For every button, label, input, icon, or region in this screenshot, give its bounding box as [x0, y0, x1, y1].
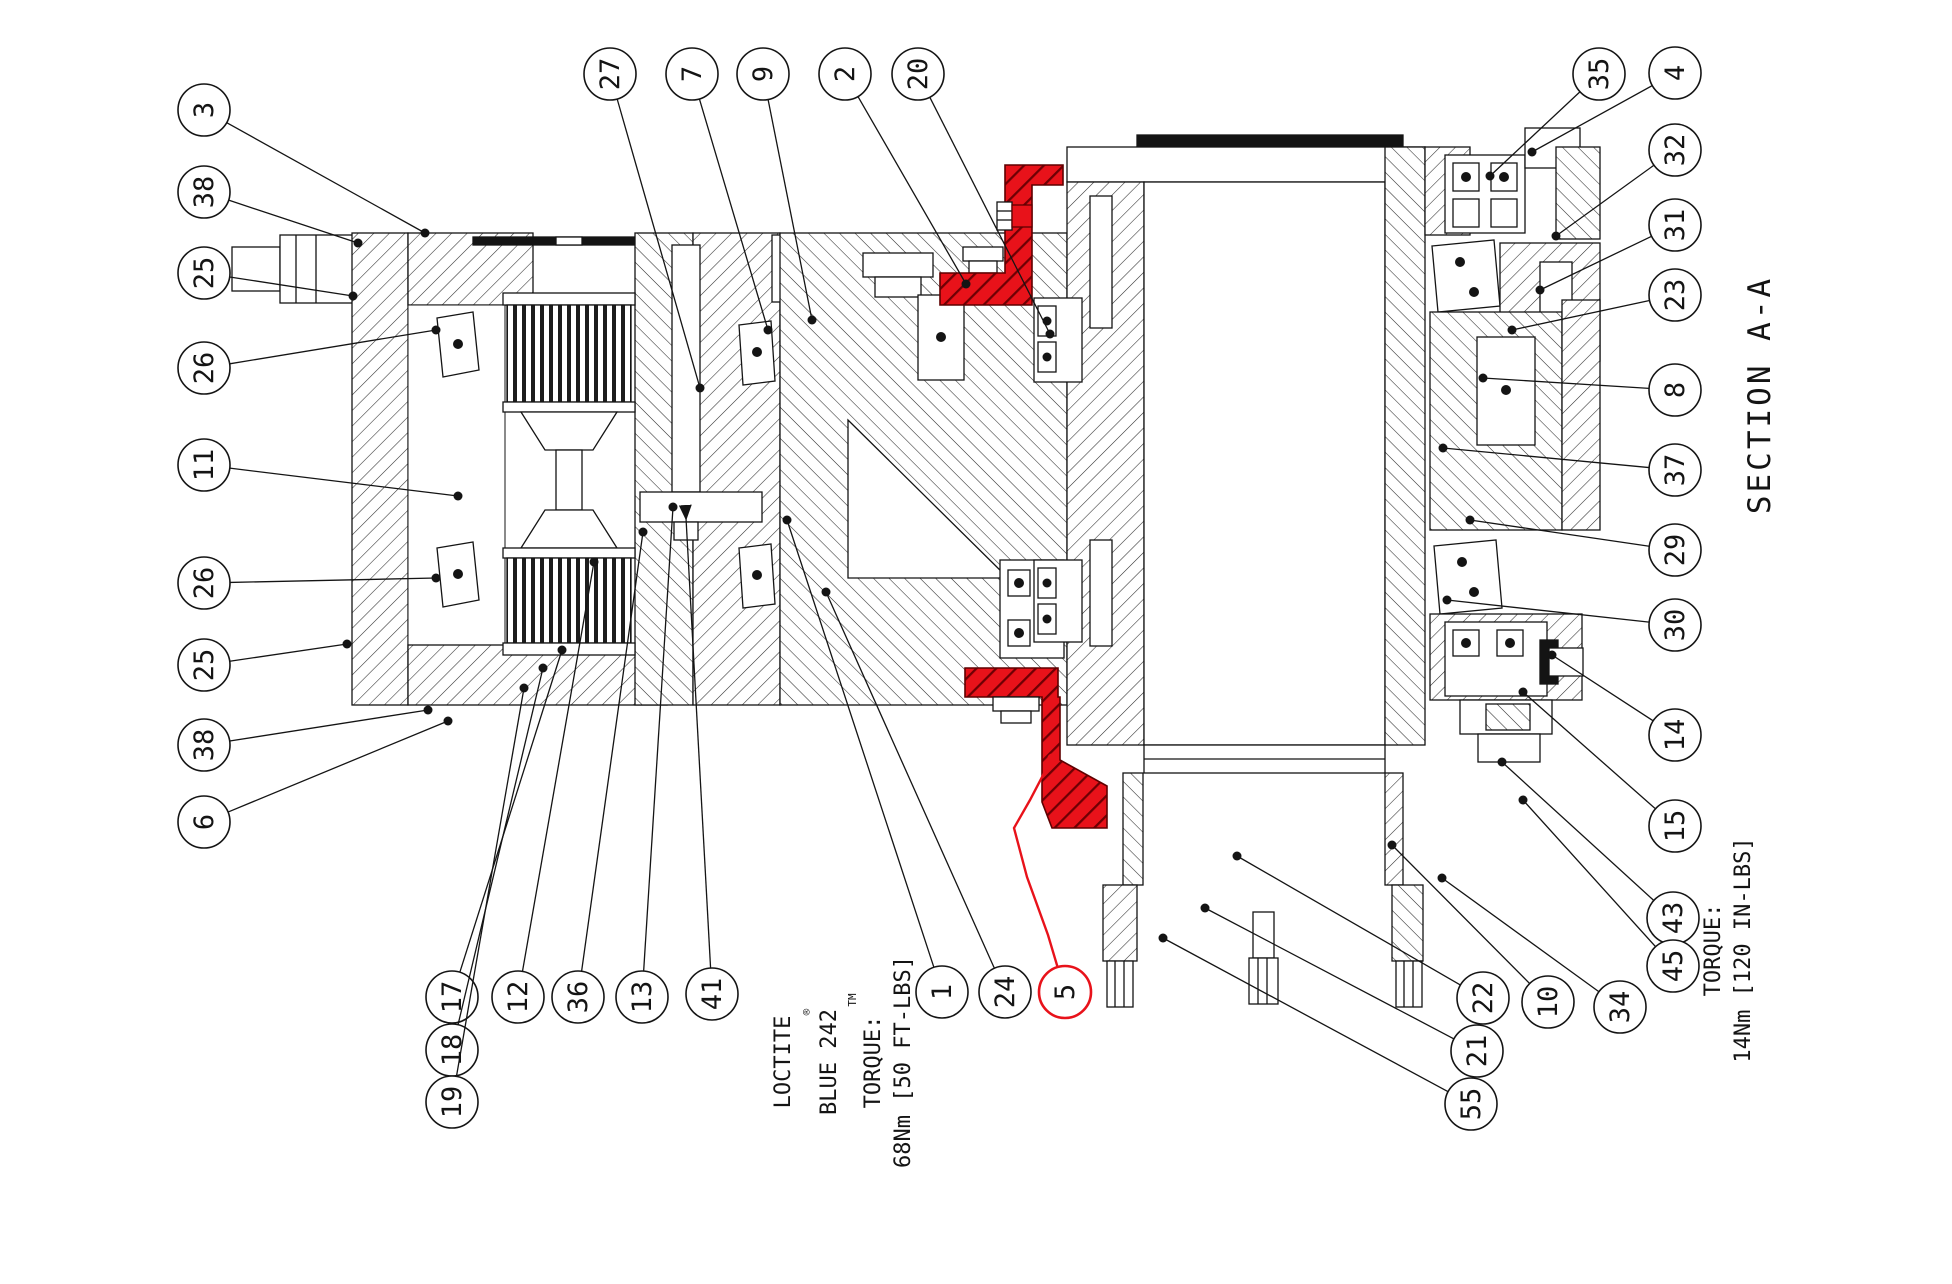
balloon-number-31: 31 [1660, 209, 1691, 242]
leader-dot-5 [1048, 754, 1057, 763]
balloon-number-29: 29 [1660, 534, 1691, 567]
note-line: 14Nm [120 IN-LBS] [1731, 837, 1756, 1062]
leader-dot-31 [1536, 286, 1545, 295]
balloon-number-45: 45 [1658, 950, 1689, 983]
left-gearbox-housing [232, 233, 857, 705]
output-flange [640, 492, 762, 522]
output-shaft [672, 245, 700, 492]
balloon-number-22: 22 [1468, 982, 1499, 1015]
bolt-under-flange [993, 697, 1039, 711]
leader-dot-6 [444, 717, 453, 726]
balloon-38-b[interactable]: 38 [178, 706, 433, 772]
balloon-number-23: 23 [1660, 279, 1691, 312]
stud-section [1012, 205, 1032, 227]
end-step-2 [1478, 734, 1540, 762]
balloon-number-5: 5 [1050, 984, 1081, 1000]
leader-dot-25-b [343, 640, 352, 649]
gear-hub-hourglass [521, 412, 617, 548]
drum-bore [1144, 182, 1385, 745]
ring-gear-key [556, 237, 582, 245]
balloon-number-37: 37 [1660, 454, 1691, 487]
leader-dot-26-b [432, 574, 441, 583]
balloon-number-41: 41 [697, 978, 728, 1011]
leader-dot-43 [1498, 758, 1507, 767]
leader-dot-30 [1443, 596, 1452, 605]
leader-dot-45 [1519, 796, 1528, 805]
leader-dot-38-a [354, 239, 363, 248]
balloon-number-25-a: 25 [189, 257, 220, 290]
bearing-lower-mid [739, 544, 775, 608]
leader-dot-18 [539, 664, 548, 673]
balloon-number-21: 21 [1462, 1035, 1493, 1068]
balloon-14[interactable]: 14 [1548, 651, 1702, 762]
leader-dot-20 [1046, 330, 1055, 339]
leader-dot-1 [783, 516, 792, 525]
balloon-number-6: 6 [189, 814, 220, 830]
note-torque-right: TORQUE: 14Nm [120 IN-LBS] [1701, 837, 1756, 1062]
balloon-number-14: 14 [1660, 719, 1691, 752]
bearing-box-bottom [1445, 622, 1558, 696]
leader-line-45 [1523, 800, 1656, 947]
balloon-number-55: 55 [1456, 1088, 1487, 1121]
leader-dot-11 [454, 492, 463, 501]
balloon-number-43: 43 [1658, 902, 1689, 935]
balloon-number-24: 24 [990, 976, 1021, 1009]
trunnion-bearing-upper [1034, 298, 1082, 382]
leader-dot-10 [1388, 841, 1397, 850]
leader-dot-27 [696, 384, 705, 393]
balloon-number-38-b: 38 [189, 729, 220, 762]
leader-line-6 [228, 721, 448, 812]
balloon-number-15: 15 [1660, 810, 1691, 843]
balloon-number-10: 10 [1533, 986, 1564, 1019]
balloon-number-1: 1 [927, 984, 958, 1000]
balloon-number-13: 13 [627, 981, 658, 1014]
bearing-lower-left [437, 542, 479, 607]
wall-slot-upper [1090, 196, 1112, 328]
leader-dot-34 [1438, 874, 1447, 883]
leader-dot-29 [1466, 516, 1475, 525]
leader-dot-25-a [349, 292, 358, 301]
leader-line-43 [1502, 762, 1654, 900]
leader-dot-21 [1201, 904, 1210, 913]
leader-dot-36 [639, 528, 648, 537]
clutch-stack-lower [503, 548, 635, 655]
leader-dot-7 [764, 326, 773, 335]
leader-dot-8 [1479, 374, 1488, 383]
balloon-25-b[interactable]: 25 [178, 639, 352, 691]
hex-bolt-top-2 [963, 247, 1003, 273]
registered-mark: ® [800, 1008, 813, 1015]
bearing-box-top [1445, 155, 1525, 233]
drum-top-cap [1067, 147, 1425, 182]
clutch-stack-upper [503, 293, 635, 412]
leader-dot-55 [1159, 934, 1168, 943]
section-title: SECTION A-A [1742, 276, 1778, 514]
balloon-number-3: 3 [189, 102, 220, 118]
leader-dot-12 [590, 558, 599, 567]
balloon-number-4: 4 [1660, 65, 1691, 81]
balloon-number-11: 11 [189, 449, 220, 482]
balloon-number-30: 30 [1660, 609, 1691, 642]
balloon-number-25-b: 25 [189, 649, 220, 682]
leader-dot-13 [669, 503, 678, 512]
balloon-number-7: 7 [677, 66, 708, 82]
leader-dot-3 [421, 229, 430, 238]
balloon-number-27: 27 [595, 58, 626, 91]
balloon-number-32: 32 [1660, 134, 1691, 167]
balloon-number-19: 19 [437, 1086, 468, 1119]
leader-dot-4 [1528, 148, 1537, 157]
note-line: BLUE 242 [817, 1009, 842, 1115]
adapter-plates [693, 233, 780, 705]
leader-dot-9 [808, 316, 817, 325]
balloon-number-26-a: 26 [189, 352, 220, 385]
balloon-number-9: 9 [748, 66, 779, 82]
stud-tail [997, 202, 1012, 230]
leader-line-25-b [230, 644, 347, 661]
outer-ring [1562, 300, 1600, 530]
note-line: 68Nm [50 FT-LBS] [891, 956, 916, 1168]
leader-dot-38-b [424, 706, 433, 715]
leader-line-38-b [230, 710, 428, 741]
input-pad [232, 247, 280, 291]
balloon-number-20: 20 [903, 58, 934, 91]
balloon-number-2: 2 [830, 66, 861, 82]
leader-dot-15 [1519, 688, 1528, 697]
drum-top-seal-strip [1137, 135, 1403, 147]
balloon-number-36: 36 [563, 981, 594, 1014]
leader-dot-37 [1439, 444, 1448, 453]
note-loctite-torque: LOCTITE ® BLUE 242 TM TORQUE: 68Nm [50 F… [771, 956, 916, 1168]
leader-dot-32 [1552, 232, 1561, 241]
balloon-number-8: 8 [1660, 382, 1691, 398]
leader-dot-22 [1233, 852, 1242, 861]
note-line: TORQUE: [861, 1016, 886, 1109]
leader-dot-19 [520, 684, 529, 693]
leader-dot-26-a [432, 326, 441, 335]
leader-dot-17 [558, 646, 567, 655]
seal-pocket [918, 295, 964, 380]
bearing-upper-left [437, 312, 479, 377]
note-line: TORQUE: [1701, 904, 1726, 997]
housing-left-wall [352, 233, 408, 705]
leader-dot-2 [962, 280, 971, 289]
drum-cylinder [1034, 135, 1425, 1007]
taper-bearing-upper-right [1432, 240, 1500, 312]
leader-dot-14 [1548, 651, 1557, 660]
section-drawing: LOCTITE ® BLUE 242 TM TORQUE: 68Nm [50 F… [0, 0, 1952, 1284]
balloon-38-a[interactable]: 38 [178, 166, 363, 248]
leader-dot-35 [1486, 172, 1495, 181]
wall-slot-lower [1090, 540, 1112, 646]
balloon-number-38-a: 38 [189, 176, 220, 209]
trunnion-bearing-lower [1034, 560, 1082, 642]
note-line: LOCTITE [771, 1016, 796, 1109]
balloon-number-35: 35 [1584, 58, 1615, 91]
leader-line-18 [458, 668, 543, 1025]
leader-dot-23 [1508, 326, 1517, 335]
leader-dot-24 [822, 588, 831, 597]
drum-right-wall [1385, 147, 1425, 745]
trademark-mark: TM [846, 993, 859, 1007]
balloon-number-12: 12 [503, 981, 534, 1014]
drain-bolt [1249, 912, 1278, 1004]
balloon-number-34: 34 [1605, 991, 1636, 1024]
balloon-number-26-b: 26 [189, 567, 220, 600]
balloon-number-17: 17 [437, 981, 468, 1014]
balloon-55[interactable]: 55 [1159, 934, 1498, 1131]
leader-line-3 [227, 123, 425, 233]
